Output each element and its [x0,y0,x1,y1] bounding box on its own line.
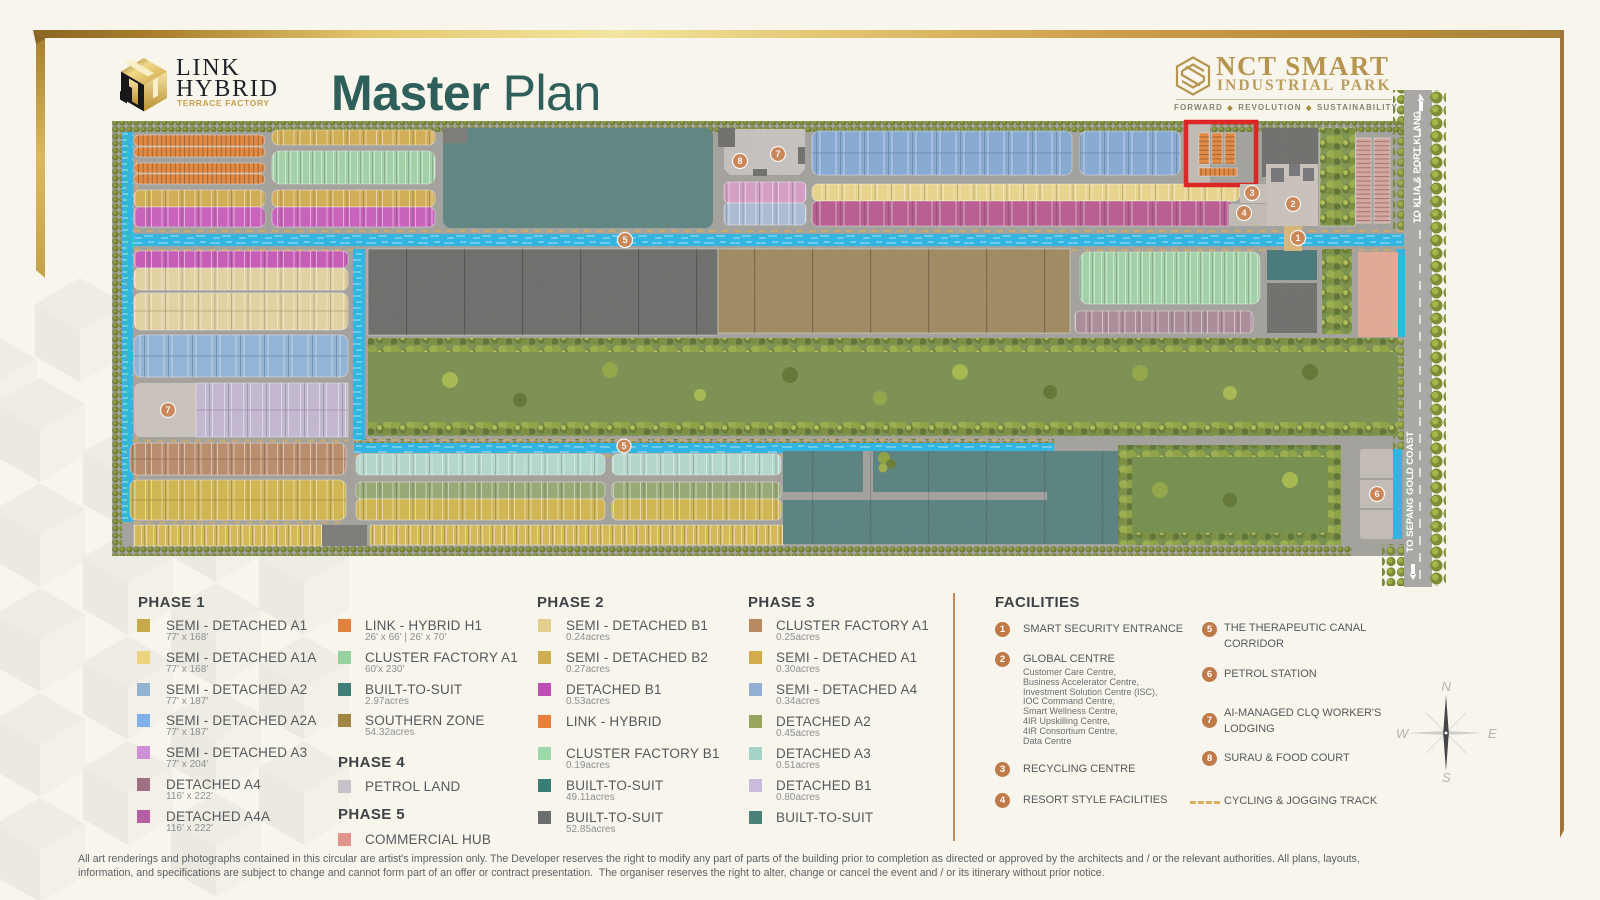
svg-text:S: S [1442,770,1451,785]
svg-text:N: N [1442,679,1452,694]
svg-text:TO SEPANG GOLD COAST: TO SEPANG GOLD COAST [1405,431,1416,552]
svg-text:E: E [1488,726,1497,741]
svg-text:TO KLIA & PORT KLANG: TO KLIA & PORT KLANG [1412,111,1423,223]
